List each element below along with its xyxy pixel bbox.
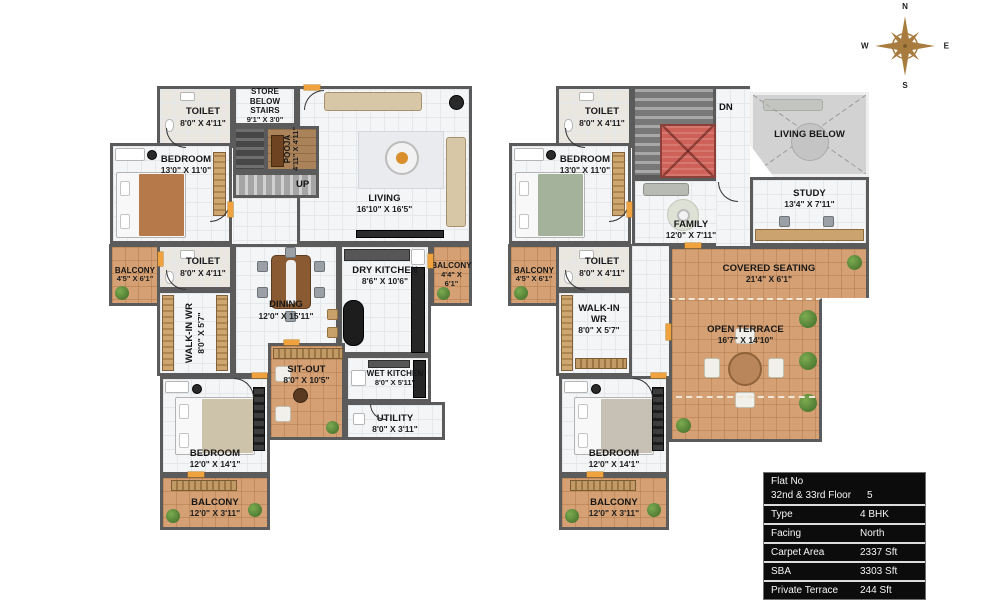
floorplan-canvas: TOILET 8'0" X 4'11" STORE BELOW STAIRS 9… <box>0 0 1000 600</box>
room-open-terrace-upper: OPEN TERRACE 16'7" X 14'10" <box>669 298 822 442</box>
wardrobe-icon <box>216 295 228 371</box>
terrace-dash-line <box>676 396 815 398</box>
washer-icon <box>351 370 366 386</box>
door-icon <box>304 85 320 90</box>
sink-icon <box>579 92 594 101</box>
rug-below-icon <box>791 123 829 161</box>
room-study-upper: STUDY 13'4" X 7'11" <box>750 177 869 246</box>
chair-icon <box>823 216 834 227</box>
compass-north-label: N <box>902 2 908 11</box>
bed-icon <box>515 172 585 238</box>
flat-no-value: 5 <box>867 489 873 502</box>
room-balcony-left-lower: BALCONY 4'5" X 6'1" <box>109 244 161 306</box>
room-name: WALK-IN WR <box>184 303 195 363</box>
wardrobe-icon <box>253 387 265 451</box>
room-name: BALCONY <box>115 266 155 275</box>
door-icon <box>666 324 671 340</box>
planter-icon <box>171 480 237 491</box>
desk-icon <box>514 148 544 161</box>
sink-icon <box>180 92 195 101</box>
room-bedroom-top-upper: BEDROOM 13'0" X 11'0" <box>509 143 631 244</box>
kitchen-counter-icon <box>344 249 410 261</box>
chair-icon <box>285 311 296 322</box>
door-icon <box>158 252 163 266</box>
wardrobe-icon <box>652 387 664 451</box>
room-toilet-mid-upper: TOILET 8'0" X 4'11" <box>556 244 632 290</box>
room-name: LIVING <box>368 193 400 204</box>
room-dims: 4'11" X 4'11" <box>292 127 301 171</box>
room-balcony-right-lower: BALCONY 4'4" X 6'1" <box>431 244 472 306</box>
compass-star-icon <box>874 15 936 77</box>
terrace-chair-icon <box>704 358 720 378</box>
room-dims: 12'0" X 3'11" <box>190 508 240 518</box>
hall-upper-2 <box>632 246 669 376</box>
room-sitout-lower: SIT-OUT 8'0" X 10'5" <box>268 343 345 440</box>
private-terrace-label: Private Terrace <box>771 585 838 596</box>
room-walkin-lower: WALK-IN WR 8'0" X 5'7" <box>157 290 233 376</box>
type-value: 4 BHK <box>860 508 889 521</box>
flat-no-label: Flat No <box>771 475 918 488</box>
room-dims: 8'0" X 5'7" <box>578 325 619 335</box>
tv-console-icon <box>356 230 444 238</box>
room-dims: 8'0" X 5'11" <box>375 379 415 388</box>
room-name: TOILET <box>585 106 619 117</box>
study-desk-icon <box>755 229 864 241</box>
room-dims: 8'0" X 4'11" <box>579 268 625 278</box>
door-icon <box>428 254 433 268</box>
terrace-chair-icon <box>768 358 784 378</box>
room-bedroom-bottom-lower: BEDROOM 12'0" X 14'1" <box>160 376 270 475</box>
sink-icon <box>579 250 594 259</box>
table-row-carpet-area: Carpet Area 2337 Sft <box>764 542 925 561</box>
room-living-below-void: LIVING BELOW <box>750 92 869 177</box>
room-dims: 8'0" X 4'11" <box>180 118 226 128</box>
door-icon <box>228 202 233 217</box>
compass-rose: N S E W <box>861 4 949 88</box>
chair-icon <box>285 247 296 258</box>
door-icon <box>685 243 701 248</box>
room-name: BALCONY <box>431 261 471 270</box>
plan-lower-floor: TOILET 8'0" X 4'11" STORE BELOW STAIRS 9… <box>108 86 472 532</box>
sink-icon <box>180 250 195 259</box>
table-row-private-terrace: Private Terrace 244 Sft <box>764 580 925 599</box>
table-row-flat-no: Flat No 32nd & 33rd Floor 5 <box>764 473 925 504</box>
pillow-icon <box>120 181 130 196</box>
room-store-lower: STORE BELOW STAIRS 9'1" X 3'0" <box>233 86 297 126</box>
room-balcony-bottom-upper: BALCONY 12'0" X 3'11" <box>559 475 669 530</box>
room-name: POOJA <box>283 135 292 164</box>
kitchen-island-icon <box>343 300 364 346</box>
floor-label: 32nd & 33rd Floor <box>771 490 851 501</box>
kitchen-counter-icon <box>411 267 425 353</box>
room-dims: 13'4" X 7'11" <box>784 199 834 209</box>
room-dims: 21'4" X 6'1" <box>746 274 792 284</box>
room-wet-kitchen-lower: WET KITCHEN 8'0" X 5'11" <box>345 355 431 402</box>
door-icon <box>627 202 632 217</box>
plant-icon <box>166 509 180 523</box>
sofa-below-icon <box>763 99 823 111</box>
pillow-icon <box>519 181 529 196</box>
room-dims: 8'0" X 3'11" <box>372 424 418 434</box>
room-balcony-bottom-lower: BALCONY 12'0" X 3'11" <box>160 475 270 530</box>
terrace-chair-icon <box>735 392 755 408</box>
hall-lower <box>233 198 297 244</box>
plant-icon <box>799 352 817 370</box>
sba-value: 3303 Sft <box>860 565 897 578</box>
room-name: STUDY <box>793 188 826 199</box>
plant-icon <box>437 287 450 300</box>
room-dims: 12'0" X 3'11" <box>589 508 639 518</box>
room-dims: 4'5" X 6'1" <box>117 275 154 284</box>
blanket-icon <box>601 399 652 453</box>
dining-table-icon <box>271 255 311 309</box>
blanket-icon <box>538 174 583 236</box>
bench-icon <box>575 358 627 369</box>
bench-icon <box>273 348 343 359</box>
carpet-area-value: 2337 Sft <box>860 546 897 559</box>
wardrobe-icon <box>561 295 573 371</box>
fridge-icon <box>411 249 425 265</box>
table-row-type: Type 4 BHK <box>764 504 925 523</box>
sofa-icon <box>324 92 422 111</box>
desk-icon <box>165 381 189 393</box>
chair-icon <box>546 150 556 160</box>
armchair-icon <box>275 406 291 422</box>
pillow-icon <box>120 214 130 229</box>
room-dry-kitchen-lower: DRY KITCHEN 8'6" X 10'6" <box>339 244 431 355</box>
desk-icon <box>564 381 588 393</box>
sba-label: SBA <box>771 566 791 577</box>
chair-icon <box>257 287 268 298</box>
room-dims: 8'0" X 5'7" <box>196 312 206 353</box>
room-name: BEDROOM <box>161 154 211 165</box>
pillow-icon <box>519 214 529 229</box>
facing-value: North <box>860 527 884 540</box>
room-name: STORE BELOW STAIRS <box>236 87 294 115</box>
room-toilet-mid-lower: TOILET 8'0" X 4'11" <box>157 244 233 290</box>
chair-icon <box>779 216 790 227</box>
door-icon <box>252 373 267 378</box>
chair-icon <box>147 150 157 160</box>
pillow-icon <box>179 433 189 448</box>
door-icon <box>284 340 299 345</box>
room-name: BALCONY <box>590 497 638 508</box>
desk-icon <box>115 148 145 161</box>
room-name: DRY KITCHEN <box>352 265 418 276</box>
kitchen-counter-icon <box>413 360 426 398</box>
room-balcony-left-upper: BALCONY 4'5" X 6'1" <box>508 244 560 306</box>
plant-icon <box>847 255 862 270</box>
room-name: WALK-IN WR <box>569 303 629 325</box>
side-table-icon <box>293 388 308 403</box>
room-name: SIT-OUT <box>287 364 325 375</box>
pillow-icon <box>578 433 588 448</box>
bar-chair-icon <box>327 309 338 320</box>
room-pooja-lower: POOJA 4'11" X 4'11" <box>265 126 319 172</box>
blanket-icon <box>202 399 253 453</box>
room-name: TOILET <box>186 106 220 117</box>
type-label: Type <box>771 509 793 520</box>
room-dims: 12'0" X 14'1" <box>190 459 241 469</box>
room-dims: 12'0" X 14'1" <box>589 459 640 469</box>
table-row-facing: Facing North <box>764 523 925 542</box>
plant-icon <box>326 421 339 434</box>
terrace-table-icon <box>728 352 762 386</box>
room-dims: 12'0" X 7'11" <box>666 230 716 240</box>
door-icon <box>651 373 666 378</box>
room-bedroom-top-lower: BEDROOM 13'0" X 11'0" <box>110 143 232 244</box>
wardrobe-icon <box>162 295 174 371</box>
door-icon <box>587 472 603 477</box>
door-icon <box>188 472 204 477</box>
blanket-icon <box>139 174 184 236</box>
table-runner-icon <box>286 260 296 304</box>
terrace-chair-icon <box>735 328 755 344</box>
room-name: BEDROOM <box>560 154 610 165</box>
facing-label: Facing <box>771 528 801 539</box>
room-dims: 4'5" X 6'1" <box>516 275 553 284</box>
room-dims: 16'10" X 16'5" <box>357 204 413 214</box>
pillow-icon <box>179 404 189 419</box>
pooja-altar-icon <box>271 135 284 167</box>
room-covered-seating-upper: COVERED SEATING 21'4" X 6'1" <box>669 246 869 298</box>
chair-icon <box>257 261 268 272</box>
carpet-area-label: Carpet Area <box>771 547 824 558</box>
stairs-direction-label: DN <box>719 102 733 113</box>
centerpiece-icon <box>396 152 408 164</box>
utility-sink-icon <box>353 413 365 425</box>
room-utility-lower: UTILITY 8'0" X 3'11" <box>345 402 445 440</box>
room-name: BALCONY <box>191 497 239 508</box>
plant-icon <box>115 286 129 300</box>
plan-upper-floor: TOILET 8'0" X 4'11" DN LIVING BELOW <box>507 86 871 532</box>
compass-west-label: W <box>861 42 869 51</box>
plant-icon <box>676 418 691 433</box>
bed-icon <box>574 397 654 455</box>
planter-icon <box>570 480 636 491</box>
plant-icon <box>647 503 661 517</box>
plant-icon <box>514 286 528 300</box>
room-walkin-upper: WALK-IN WR 8'0" X 5'7" <box>556 290 632 376</box>
compass-east-label: E <box>944 42 949 51</box>
table-row-sba: SBA 3303 Sft <box>764 561 925 580</box>
stove-icon <box>368 360 410 368</box>
plant-icon <box>248 503 262 517</box>
private-terrace-value: 244 Sft <box>860 584 892 597</box>
pooja-roof-icon <box>660 124 716 178</box>
chair-icon <box>591 384 601 394</box>
room-dims: 8'0" X 4'11" <box>180 268 226 278</box>
speaker-icon <box>449 95 464 110</box>
flat-info-table: Flat No 32nd & 33rd Floor 5 Type 4 BHK F… <box>763 472 926 600</box>
room-name: BALCONY <box>514 266 554 275</box>
loveseat-icon <box>643 183 689 196</box>
chair-icon <box>314 287 325 298</box>
side-table-icon <box>677 209 690 222</box>
room-dims: 8'0" X 4'11" <box>579 118 625 128</box>
compass-south-label: S <box>902 81 907 90</box>
room-dims: 9'1" X 3'0" <box>247 116 284 125</box>
armchair-icon <box>275 366 291 382</box>
room-name: COVERED SEATING <box>723 263 816 274</box>
bed-icon <box>116 172 186 238</box>
chaise-icon <box>446 137 466 227</box>
room-dims: 4'4" X 6'1" <box>434 271 469 289</box>
stairs-direction-label: UP <box>296 179 309 190</box>
plant-icon <box>799 310 817 328</box>
stairs-upper-flight <box>233 126 267 172</box>
chair-icon <box>314 261 325 272</box>
bar-chair-icon <box>327 327 338 338</box>
pillow-icon <box>578 404 588 419</box>
room-bedroom-bottom-upper: BEDROOM 12'0" X 14'1" <box>559 376 669 475</box>
chair-icon <box>192 384 202 394</box>
plant-icon <box>565 509 579 523</box>
bed-icon <box>175 397 255 455</box>
room-dims: 8'6" X 10'6" <box>362 276 408 286</box>
